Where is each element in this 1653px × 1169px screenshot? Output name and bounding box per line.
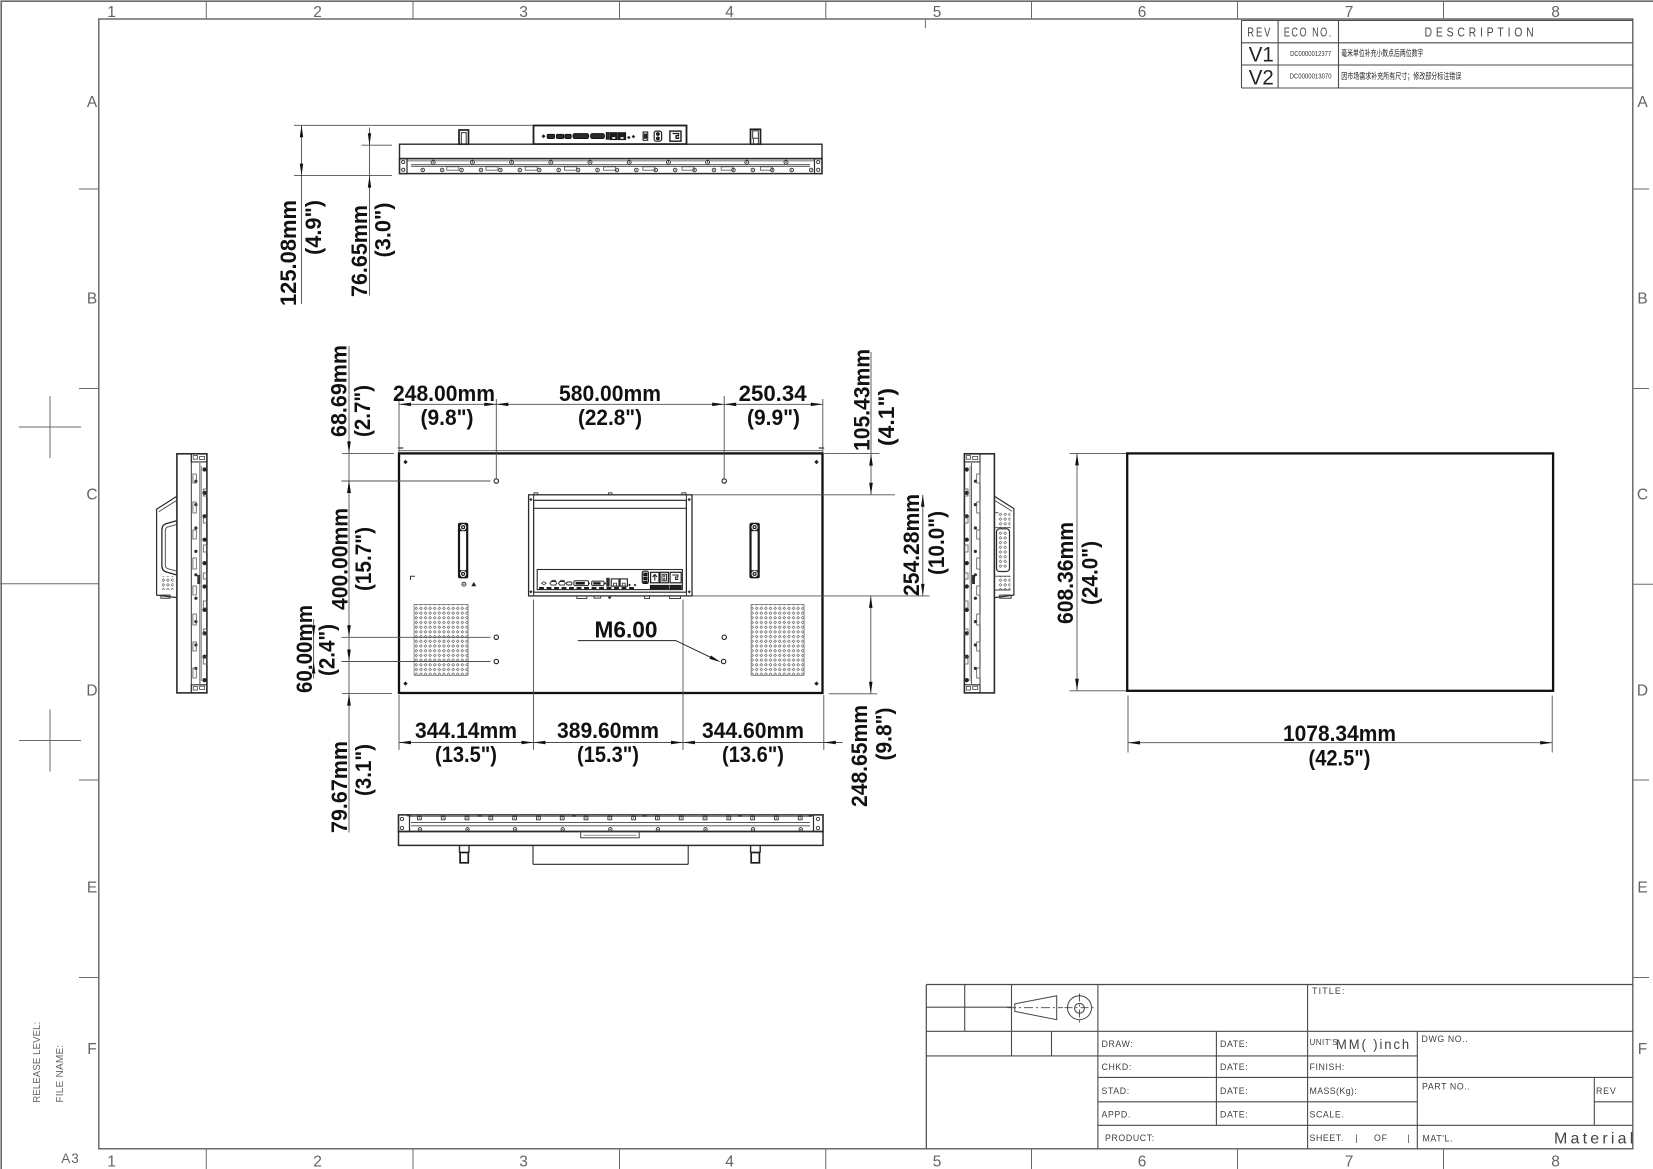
svg-text:6: 6 bbox=[1138, 1154, 1147, 1169]
svg-text:F: F bbox=[87, 1041, 96, 1058]
svg-text:125.08mm: 125.08mm bbox=[276, 200, 301, 306]
svg-text:(4.1"): (4.1") bbox=[874, 388, 899, 446]
svg-text:FINISH:: FINISH: bbox=[1310, 1062, 1345, 1072]
svg-text:(9.8"): (9.8") bbox=[872, 708, 897, 761]
svg-text:MAT'L.: MAT'L. bbox=[1423, 1134, 1454, 1144]
svg-text:250.34: 250.34 bbox=[739, 381, 808, 406]
svg-text:DWG NO..: DWG NO.. bbox=[1422, 1034, 1469, 1044]
svg-text:C: C bbox=[1637, 487, 1648, 504]
svg-text:(22.8"): (22.8") bbox=[578, 405, 642, 430]
svg-text:1078.34mm: 1078.34mm bbox=[1283, 721, 1396, 746]
svg-text:TITLE:: TITLE: bbox=[1312, 986, 1346, 996]
svg-text:M6.00: M6.00 bbox=[595, 617, 658, 643]
svg-text:DRAW:: DRAW: bbox=[1102, 1039, 1134, 1049]
svg-text:A: A bbox=[87, 94, 98, 111]
svg-text:(10.0"): (10.0") bbox=[924, 511, 949, 575]
svg-text:(24.0"): (24.0") bbox=[1078, 541, 1103, 605]
svg-text:(13.6"): (13.6") bbox=[722, 742, 784, 767]
svg-text:DC0000013070: DC0000013070 bbox=[1290, 72, 1332, 81]
svg-text:C: C bbox=[86, 487, 97, 504]
svg-text:1: 1 bbox=[107, 4, 116, 21]
svg-text:(3.0"): (3.0") bbox=[371, 203, 396, 258]
svg-text:(2.7"): (2.7") bbox=[350, 385, 375, 437]
svg-text:REV: REV bbox=[1596, 1086, 1617, 1096]
svg-text:DATE:: DATE: bbox=[1220, 1062, 1248, 1072]
svg-text:248.00mm: 248.00mm bbox=[393, 381, 495, 406]
svg-text:因市场需求补充所有尺寸；修改部分标注错误: 因市场需求补充所有尺寸；修改部分标注错误 bbox=[1341, 71, 1461, 81]
svg-text:1: 1 bbox=[107, 1154, 116, 1169]
svg-text:5: 5 bbox=[933, 4, 942, 21]
svg-text:MM( )inch: MM( )inch bbox=[1336, 1037, 1411, 1052]
svg-text:(9.9"): (9.9") bbox=[747, 405, 800, 430]
svg-text:FILE NAME:: FILE NAME: bbox=[54, 1045, 66, 1103]
svg-text:RELEASE LEVEL:: RELEASE LEVEL: bbox=[31, 1022, 43, 1103]
svg-text:8: 8 bbox=[1551, 1154, 1560, 1169]
svg-text:344.14mm: 344.14mm bbox=[415, 718, 517, 743]
svg-text:3: 3 bbox=[519, 1154, 528, 1169]
svg-text:F: F bbox=[1638, 1041, 1647, 1058]
svg-text:ECO NO.: ECO NO. bbox=[1284, 26, 1333, 40]
svg-text:608.36mm: 608.36mm bbox=[1053, 522, 1078, 624]
svg-text:DATE:: DATE: bbox=[1220, 1109, 1248, 1119]
svg-text:B: B bbox=[1637, 291, 1647, 308]
svg-text:STAD:: STAD: bbox=[1102, 1086, 1130, 1096]
svg-text:CHKD:: CHKD: bbox=[1102, 1062, 1132, 1072]
svg-text:REV: REV bbox=[1247, 26, 1272, 40]
svg-text:4: 4 bbox=[725, 4, 734, 21]
svg-text:DATE:: DATE: bbox=[1220, 1086, 1248, 1096]
svg-text:(9.8"): (9.8") bbox=[421, 405, 474, 430]
svg-text:68.69mm: 68.69mm bbox=[327, 345, 352, 437]
svg-text:DC0000012377: DC0000012377 bbox=[1290, 49, 1331, 58]
svg-text:580.00mm: 580.00mm bbox=[559, 381, 661, 406]
svg-text:254.28mm: 254.28mm bbox=[899, 494, 924, 596]
svg-text:SCALE.: SCALE. bbox=[1310, 1109, 1345, 1119]
svg-text:PRODUCT:: PRODUCT: bbox=[1105, 1133, 1155, 1143]
svg-text:5: 5 bbox=[933, 1154, 942, 1169]
svg-text:6: 6 bbox=[1138, 4, 1147, 21]
svg-text:APPD.: APPD. bbox=[1102, 1109, 1131, 1119]
svg-text:|: | bbox=[1356, 1133, 1358, 1143]
svg-text:A3: A3 bbox=[61, 1151, 80, 1166]
svg-text:248.65mm: 248.65mm bbox=[847, 705, 872, 807]
svg-text:(15.7"): (15.7") bbox=[351, 527, 376, 591]
svg-text:UNIT'S: UNIT'S bbox=[1310, 1038, 1339, 1047]
svg-text:4: 4 bbox=[725, 1154, 734, 1169]
svg-text:Material: Material bbox=[1554, 1131, 1637, 1148]
svg-text:E: E bbox=[1637, 880, 1647, 897]
svg-text:7: 7 bbox=[1345, 1154, 1354, 1169]
svg-text:(42.5"): (42.5") bbox=[1309, 745, 1371, 770]
svg-text:DATE:: DATE: bbox=[1220, 1039, 1248, 1049]
svg-text:344.60mm: 344.60mm bbox=[702, 718, 804, 743]
svg-text:7: 7 bbox=[1345, 4, 1354, 21]
svg-text:|: | bbox=[1408, 1133, 1410, 1143]
svg-text:D: D bbox=[1637, 683, 1648, 700]
svg-text:60.00mm: 60.00mm bbox=[292, 605, 317, 693]
svg-text:105.43mm: 105.43mm bbox=[850, 349, 875, 451]
svg-text:2: 2 bbox=[313, 1154, 322, 1169]
svg-text:OF: OF bbox=[1374, 1133, 1388, 1143]
svg-text:400.00mm: 400.00mm bbox=[328, 508, 353, 610]
svg-text:3: 3 bbox=[519, 4, 528, 21]
svg-text:(13.5"): (13.5") bbox=[435, 742, 497, 767]
svg-text:(3.1"): (3.1") bbox=[351, 744, 376, 796]
svg-text:V2: V2 bbox=[1249, 66, 1274, 89]
svg-text:DESCRIPTION: DESCRIPTION bbox=[1425, 26, 1538, 40]
svg-text:(4.9"): (4.9") bbox=[301, 200, 326, 255]
svg-text:(15.3"): (15.3") bbox=[577, 742, 639, 767]
svg-text:B: B bbox=[87, 291, 97, 308]
svg-text:79.67mm: 79.67mm bbox=[327, 741, 352, 833]
svg-text:(2.4"): (2.4") bbox=[315, 624, 340, 676]
svg-text:D: D bbox=[86, 683, 97, 700]
svg-text:SHEET.: SHEET. bbox=[1310, 1133, 1344, 1143]
svg-text:389.60mm: 389.60mm bbox=[557, 718, 659, 743]
svg-text:毫米单位补充小数点后两位数字: 毫米单位补充小数点后两位数字 bbox=[1341, 48, 1423, 58]
svg-text:76.65mm: 76.65mm bbox=[347, 205, 372, 297]
svg-text:8: 8 bbox=[1551, 4, 1560, 21]
svg-text:2: 2 bbox=[313, 4, 322, 21]
svg-text:E: E bbox=[87, 880, 97, 897]
svg-text:V1: V1 bbox=[1249, 43, 1274, 66]
svg-text:MASS(Kg):: MASS(Kg): bbox=[1310, 1086, 1358, 1096]
svg-text:A: A bbox=[1637, 94, 1648, 111]
svg-text:PART NO..: PART NO.. bbox=[1422, 1081, 1470, 1091]
